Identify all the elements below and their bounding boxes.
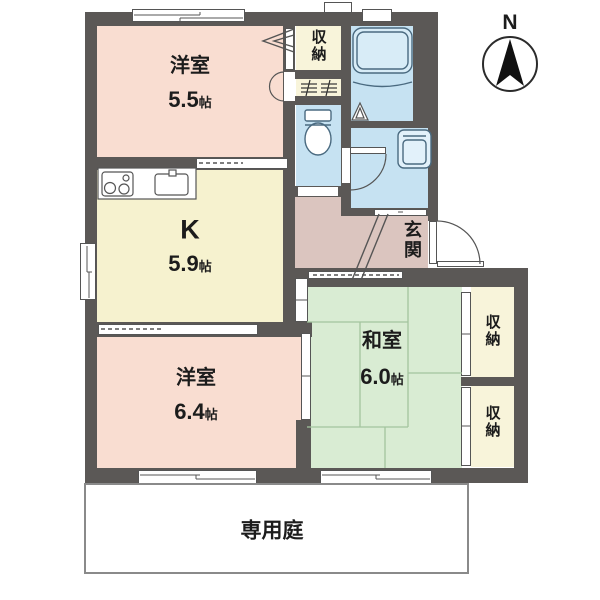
north-label: N: [502, 11, 517, 35]
sliding-door: [285, 28, 294, 70]
room-size-western-a: 5.5帖: [168, 89, 212, 111]
fusuma-door: [461, 387, 471, 466]
wall-segment: [461, 377, 528, 386]
washroom-door-leaf: [350, 147, 386, 154]
door-opening: [284, 72, 295, 101]
fusuma-door: [461, 292, 471, 376]
floor-plan: 洋室 5.5帖 K 5.9帖 洋室 6.4帖 和室 6.0帖 玄関 収納 収納 …: [0, 0, 600, 600]
door-opening: [342, 148, 350, 183]
room-bathroom: [351, 26, 415, 121]
window: [138, 470, 257, 484]
room-entrance-hall-left: [295, 197, 341, 268]
room-label-entrance: 玄関: [403, 220, 421, 260]
room-label-kitchen: K: [180, 217, 200, 244]
wall-segment: [296, 420, 311, 468]
room-label-western-a: 洋室: [170, 56, 210, 76]
room-label-closet-right-lower: 収納: [485, 405, 500, 439]
room-label-western-b: 洋室: [176, 368, 216, 388]
door-opening: [298, 187, 338, 196]
closet-hanger-area: [296, 79, 341, 96]
entrance-door-leaf: [429, 221, 437, 264]
room-label-closet-right-upper: 収納: [485, 314, 500, 348]
entrance-threshold: [437, 261, 484, 267]
room-toilet: [296, 105, 341, 186]
sliding-door: [98, 324, 258, 335]
room-kitchen: [97, 170, 283, 322]
sliding-door: [295, 278, 308, 322]
room-washroom: [349, 128, 430, 208]
room-label-japanese: 和室: [362, 331, 402, 351]
north-arrow-icon: [483, 37, 537, 91]
window: [320, 470, 432, 484]
sliding-door: [374, 209, 427, 216]
window: [132, 9, 245, 22]
window: [80, 243, 96, 300]
wall-segment: [514, 268, 528, 483]
room-size-kitchen: 5.9帖: [168, 253, 212, 275]
window: [362, 9, 392, 22]
vent-box: [324, 2, 352, 13]
wall-segment: [295, 70, 349, 79]
room-label-closet-top: 収納: [311, 29, 326, 63]
garden-label: 専用庭: [241, 521, 304, 542]
sliding-door: [308, 271, 403, 279]
room-size-japanese: 6.0帖: [360, 366, 404, 388]
wall-segment: [413, 12, 438, 128]
door-arc: [437, 221, 480, 264]
wall-segment: [295, 96, 349, 105]
sliding-door: [301, 333, 311, 420]
room-size-western-b: 6.4帖: [174, 401, 218, 423]
sliding-door: [196, 158, 288, 169]
